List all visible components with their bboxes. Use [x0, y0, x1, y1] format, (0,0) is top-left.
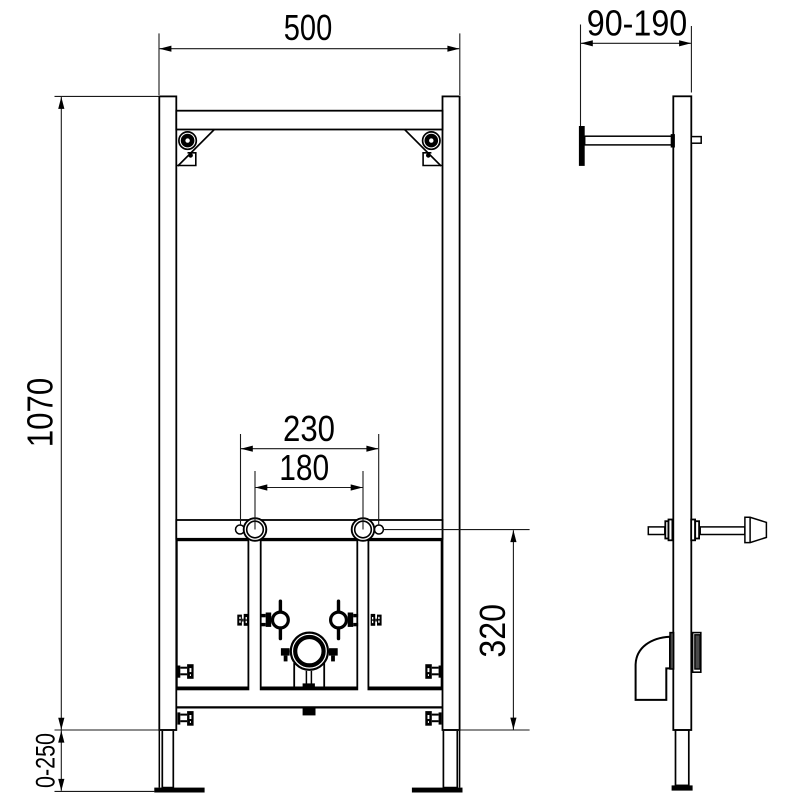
svg-text:230: 230 [283, 408, 335, 449]
svg-text:0-250: 0-250 [30, 733, 60, 788]
svg-text:90-190: 90-190 [587, 2, 688, 43]
svg-text:1070: 1070 [19, 378, 60, 448]
svg-text:180: 180 [279, 447, 329, 488]
svg-text:500: 500 [284, 7, 333, 48]
svg-text:320: 320 [472, 604, 513, 658]
